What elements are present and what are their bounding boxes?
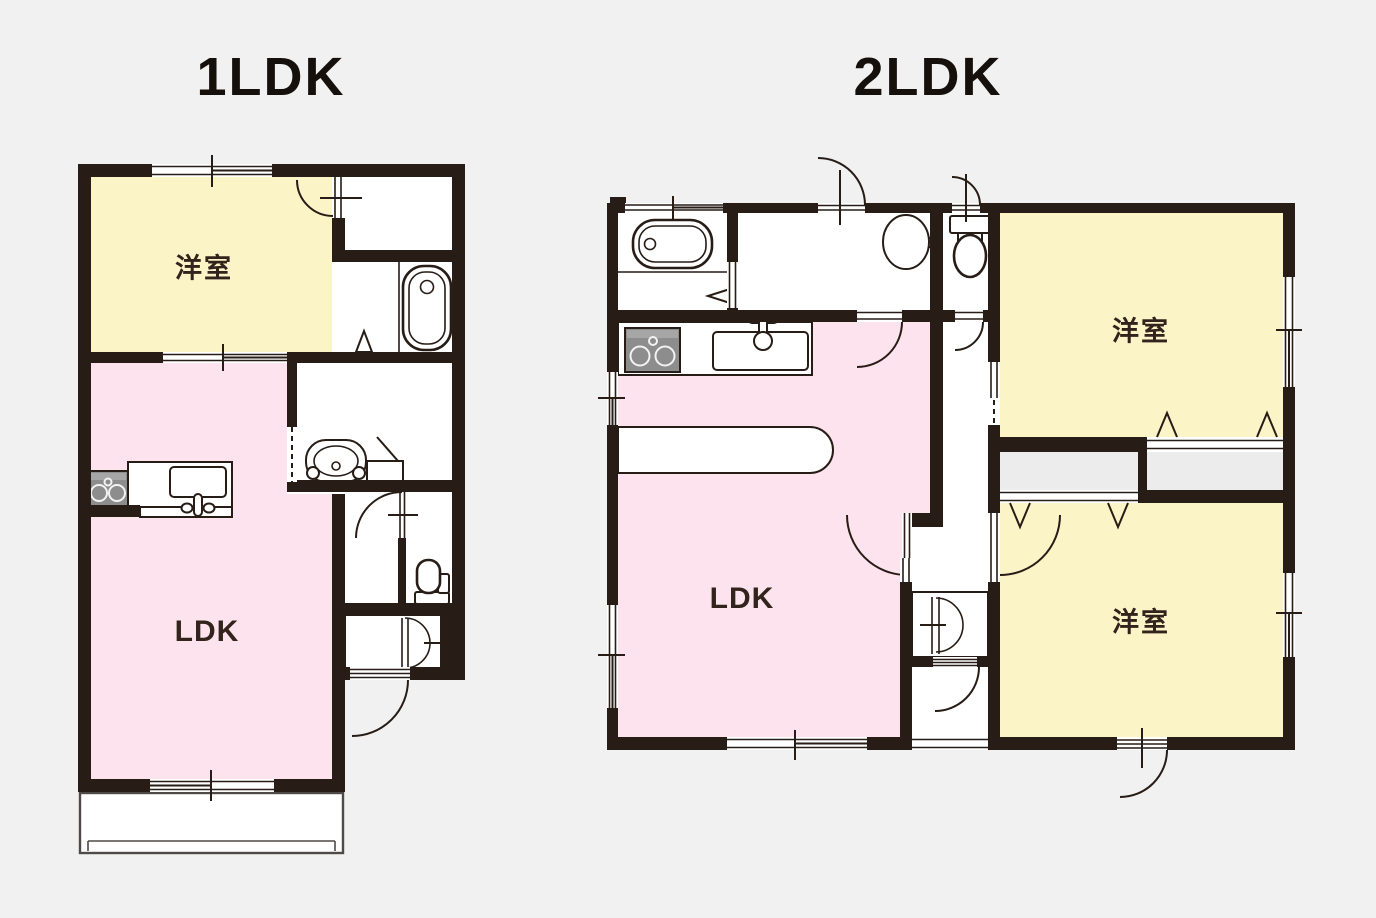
kitchen-stove-icon: [625, 328, 680, 372]
balcony: [80, 793, 343, 853]
room-label-ldk-1ldk: LDK: [175, 615, 240, 649]
plan-title-2ldk: 2LDK: [853, 46, 1002, 108]
exterior-door-yoshitsu2: [1117, 728, 1167, 797]
sliding-door-yoshitsu1: [988, 362, 1000, 425]
bathtub-icon: [633, 220, 712, 268]
plan-1ldk: [78, 155, 465, 853]
room-label-ldk-2ldk: LDK: [710, 582, 775, 616]
entrance-door: [350, 667, 410, 736]
room-ldk-fill: [91, 363, 287, 779]
floorplan-comparison: 1LDK 2LDK 洋室 LDK 洋室 洋室 LDK: [0, 0, 1376, 918]
kitchen-stove-icon: [88, 471, 128, 507]
closet: [345, 615, 452, 668]
room-label-yoshitsu2-2ldk: 洋室: [1112, 601, 1170, 640]
door-bathroom: [727, 262, 738, 308]
sliding-door-washroom: [287, 427, 297, 482]
plan-title-1ldk: 1LDK: [196, 46, 345, 108]
room-ldk-fill: [618, 322, 930, 737]
room-label-yoshitsu-1ldk: 洋室: [175, 247, 233, 286]
room-label-yoshitsu1-2ldk: 洋室: [1112, 310, 1170, 349]
closet-left-fill: [1000, 452, 1138, 490]
closet-right-fill: [1147, 452, 1283, 490]
bathtub-icon: [403, 266, 451, 350]
toilet-icon: [950, 216, 990, 277]
kitchen-island-counter: [618, 427, 833, 473]
plan-2ldk: [598, 158, 1302, 797]
floorplan-drawing: [0, 0, 1376, 918]
wash-basin-icon: [306, 440, 366, 482]
